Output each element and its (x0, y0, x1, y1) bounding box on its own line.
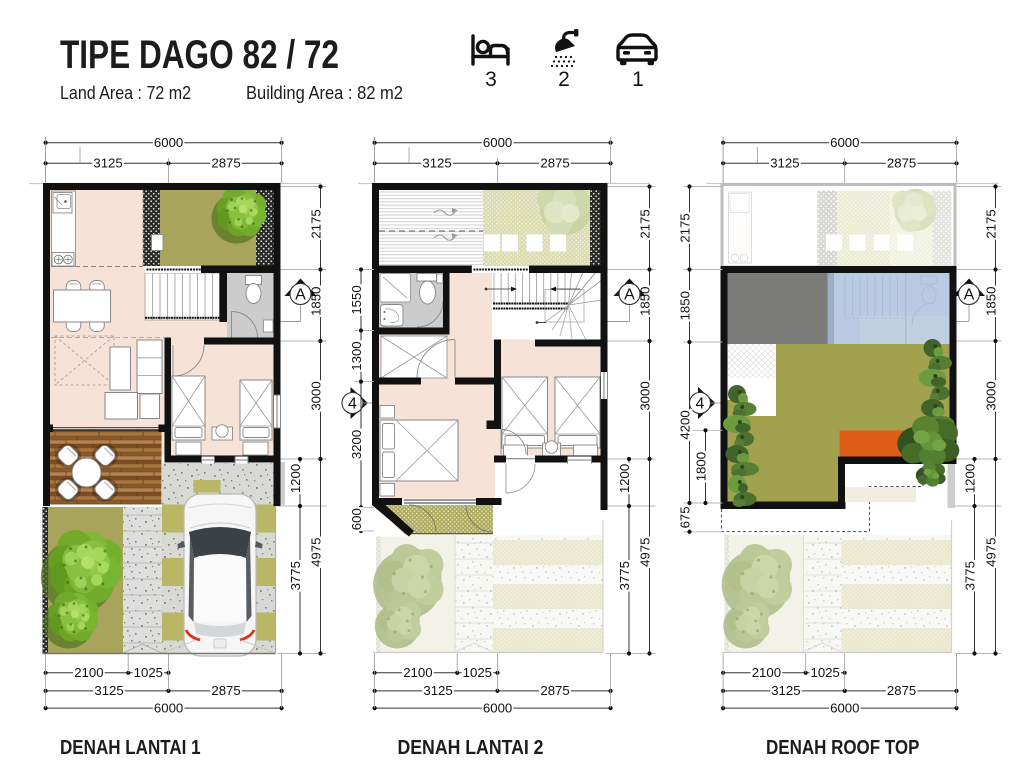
svg-text:1200: 1200 (617, 464, 632, 493)
svg-text:1200: 1200 (288, 464, 303, 493)
svg-text:4975: 4975 (638, 538, 653, 567)
svg-text:3125: 3125 (771, 683, 800, 698)
svg-text:3125: 3125 (94, 683, 123, 698)
svg-text:1200: 1200 (963, 464, 978, 493)
svg-text:6000: 6000 (483, 135, 512, 150)
svg-text:3000: 3000 (984, 381, 999, 410)
svg-text:3775: 3775 (963, 561, 978, 590)
svg-text:2875: 2875 (887, 156, 916, 171)
svg-text:1: 1 (632, 68, 644, 91)
svg-text:A: A (624, 287, 635, 304)
svg-text:3000: 3000 (309, 381, 324, 410)
svg-text:1550: 1550 (349, 285, 364, 314)
svg-text:3125: 3125 (422, 156, 451, 171)
svg-text:4975: 4975 (309, 538, 324, 567)
svg-text:2875: 2875 (540, 156, 569, 171)
svg-text:4: 4 (696, 396, 705, 413)
svg-text:3: 3 (485, 68, 497, 91)
svg-text:6000: 6000 (154, 700, 183, 715)
svg-text:DENAH LANTAI 2: DENAH LANTAI 2 (398, 736, 544, 759)
svg-text:6000: 6000 (154, 135, 183, 150)
svg-text:1300: 1300 (349, 341, 364, 370)
svg-text:4975: 4975 (984, 538, 999, 567)
svg-text:2175: 2175 (309, 209, 324, 238)
svg-text:1025: 1025 (811, 665, 840, 680)
svg-text:4200: 4200 (678, 410, 693, 439)
svg-text:675: 675 (678, 506, 693, 528)
svg-text:3125: 3125 (423, 683, 452, 698)
svg-text:1850: 1850 (984, 287, 999, 316)
svg-text:3125: 3125 (770, 156, 799, 171)
svg-text:2175: 2175 (638, 209, 653, 238)
svg-text:2175: 2175 (984, 209, 999, 238)
svg-text:2875: 2875 (211, 156, 240, 171)
svg-text:2875: 2875 (211, 683, 240, 698)
svg-text:DENAH ROOF TOP: DENAH ROOF TOP (766, 736, 919, 759)
svg-text:1850: 1850 (678, 291, 693, 320)
svg-text:3200: 3200 (349, 430, 364, 459)
svg-text:3775: 3775 (617, 561, 632, 590)
svg-text:A: A (295, 287, 306, 304)
svg-text:2: 2 (558, 68, 570, 91)
svg-text:1025: 1025 (134, 665, 163, 680)
svg-text:4: 4 (348, 396, 357, 413)
svg-text:1025: 1025 (463, 665, 492, 680)
svg-text:Land Area : 72 m2: Land Area : 72 m2 (60, 83, 191, 103)
svg-text:3775: 3775 (288, 561, 303, 590)
svg-text:2100: 2100 (752, 665, 781, 680)
svg-text:2100: 2100 (403, 665, 432, 680)
svg-text:3125: 3125 (93, 156, 122, 171)
svg-text:2100: 2100 (74, 665, 103, 680)
svg-text:6000: 6000 (483, 700, 512, 715)
svg-text:2875: 2875 (540, 683, 569, 698)
svg-text:2875: 2875 (887, 683, 916, 698)
svg-text:Building Area : 82 m2: Building Area : 82 m2 (246, 83, 403, 103)
svg-text:DENAH LANTAI 1: DENAH LANTAI 1 (60, 736, 201, 759)
svg-text:6000: 6000 (830, 135, 859, 150)
svg-text:2175: 2175 (678, 213, 693, 242)
svg-text:A: A (964, 287, 975, 304)
svg-text:TIPE DAGO 82 / 72: TIPE DAGO 82 / 72 (60, 33, 339, 77)
svg-text:3000: 3000 (638, 381, 653, 410)
svg-text:6000: 6000 (830, 700, 859, 715)
svg-text:1800: 1800 (694, 452, 709, 481)
svg-text:600: 600 (349, 508, 364, 530)
